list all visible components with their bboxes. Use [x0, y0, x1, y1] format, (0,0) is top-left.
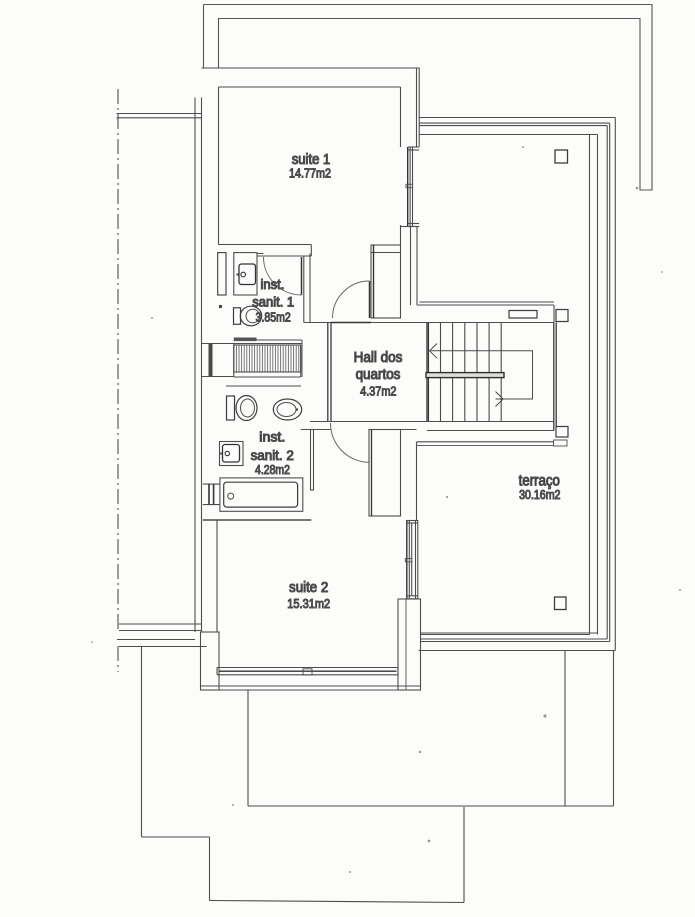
- svg-text:Hall dos: Hall dos: [354, 350, 403, 366]
- svg-text:inst.: inst.: [260, 276, 284, 292]
- svg-text:4.37m2: 4.37m2: [360, 383, 396, 398]
- svg-text:suite 2: suite 2: [289, 580, 328, 596]
- svg-text:sanit. 1: sanit. 1: [252, 293, 294, 309]
- svg-text:inst.: inst.: [259, 429, 285, 445]
- svg-text:sanit. 2: sanit. 2: [251, 447, 294, 463]
- svg-text:15.31m2: 15.31m2: [287, 596, 330, 611]
- svg-text:4.28m2: 4.28m2: [255, 462, 290, 477]
- svg-text:30.16m2: 30.16m2: [519, 487, 560, 502]
- svg-text:quartos: quartos: [356, 367, 401, 383]
- svg-text:3.85m2: 3.85m2: [256, 309, 291, 324]
- svg-text:14.77m2: 14.77m2: [289, 166, 331, 181]
